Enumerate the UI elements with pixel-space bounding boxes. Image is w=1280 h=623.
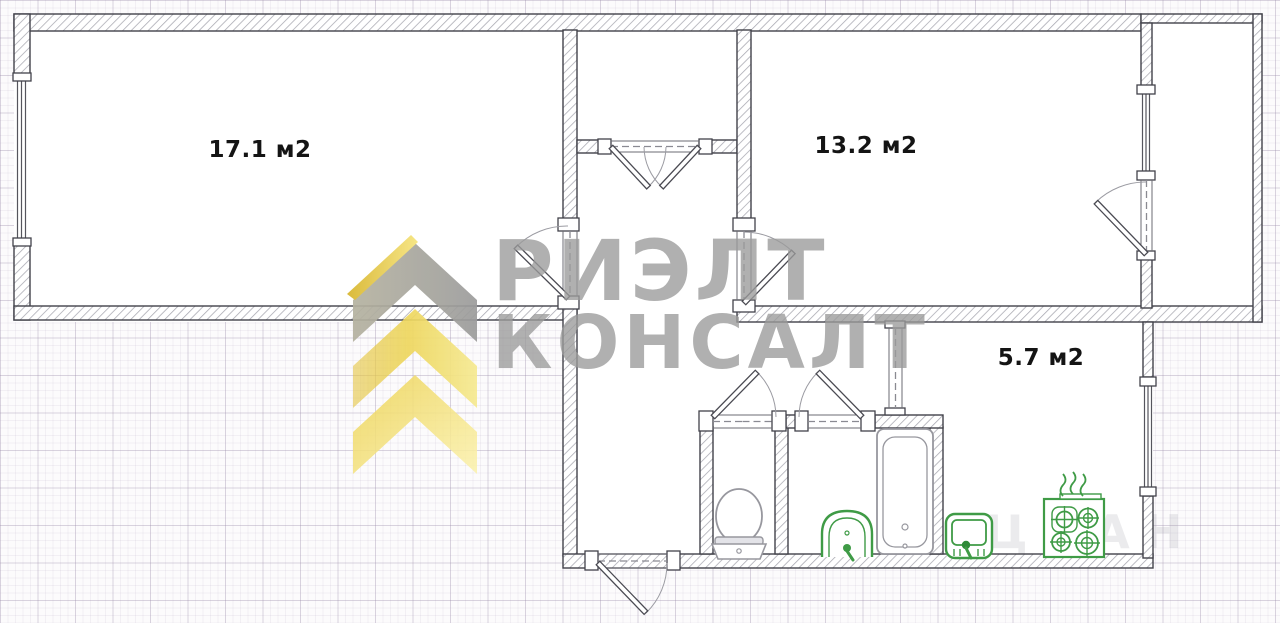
- wall-top-balcony: [1141, 14, 1262, 23]
- window-kitchen: [1143, 386, 1153, 487]
- wall-kitchen-right-upper: [1143, 322, 1153, 377]
- floorplan-drawing: ЦИАН: [0, 0, 1280, 623]
- wall-balcony-right: [1253, 14, 1262, 322]
- room-label-kitchen: 5.7 м2: [998, 345, 1085, 371]
- room-label-living: 17.1 м2: [208, 137, 311, 163]
- floorplan-canvas: ЦИАН: [0, 0, 1280, 623]
- wall-wc-left: [700, 427, 713, 554]
- wall-left-upper: [14, 14, 30, 76]
- wall-living-hall: [563, 30, 577, 220]
- wall-balcony-top-seg: [1141, 23, 1152, 86]
- kitchen-sink-icon: [946, 514, 992, 558]
- bathtub-icon: [877, 429, 933, 554]
- wall-closet-right: [710, 140, 737, 153]
- toilet-icon: [712, 489, 766, 559]
- wall-top-main: [14, 14, 1141, 31]
- window-living: [14, 76, 30, 244]
- apartment-floor-fill: [14, 14, 1262, 568]
- wall-hall-bedroom: [737, 30, 751, 220]
- bath-sink-icon: [822, 511, 872, 560]
- wall-closet-left: [577, 140, 600, 153]
- wall-midband-right: [737, 306, 1262, 322]
- room-label-bedroom: 13.2 м2: [814, 133, 917, 159]
- window-balcony: [1141, 94, 1152, 171]
- wall-wc-bath-divider: [775, 427, 788, 554]
- wall-midband-left: [14, 306, 577, 320]
- wall-hall-left-lower: [563, 306, 577, 556]
- door-leaf-entrance: [596, 561, 648, 614]
- arc-entrance-door: [646, 563, 667, 613]
- wall-bath-top: [875, 415, 943, 428]
- wall-kitchen-right-lower: [1143, 496, 1153, 558]
